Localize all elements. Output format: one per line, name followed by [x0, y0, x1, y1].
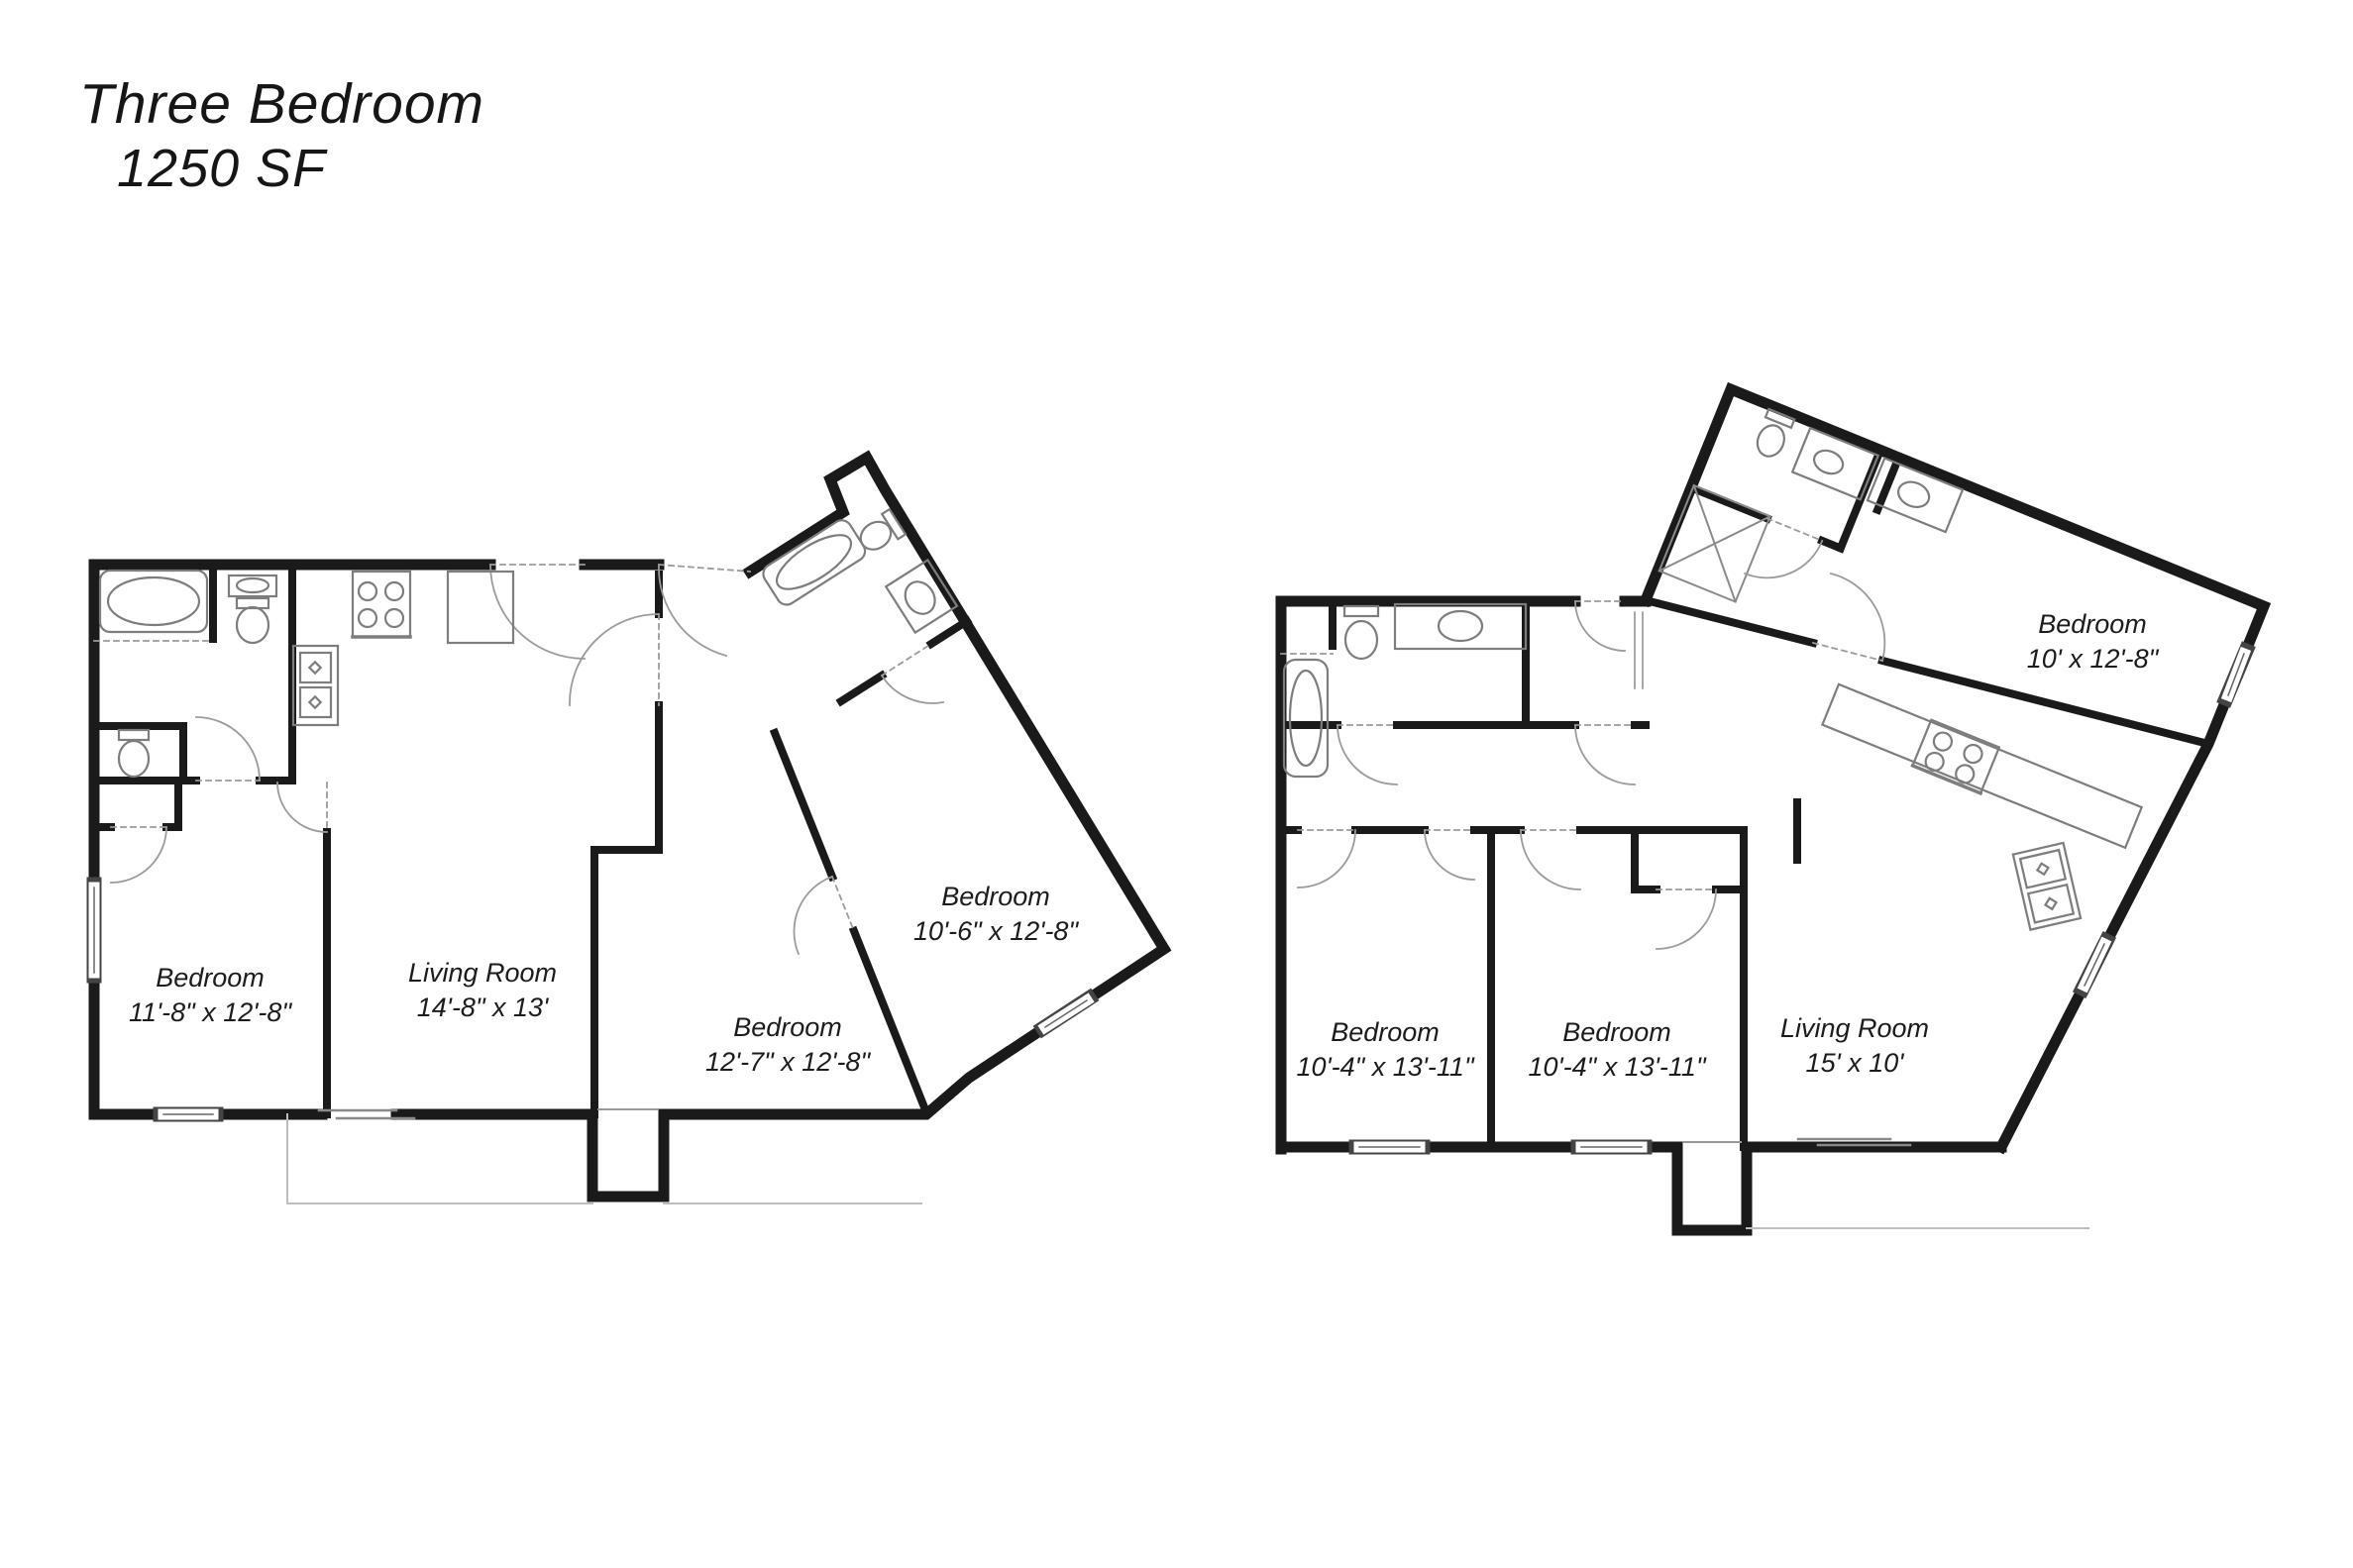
window-icon [2226, 651, 2246, 698]
window-icon [2083, 941, 2106, 989]
room-name: Bedroom [156, 963, 265, 993]
stove-icon [1913, 720, 1999, 793]
entry-stoop [1677, 1147, 1747, 1230]
floor-plan-left-unit [94, 458, 1164, 1203]
exterior-walls [94, 458, 1164, 1197]
room-label-bedroom: Bedroom 12'-7" x 12'-8" [705, 1010, 870, 1080]
room-dimensions: 15' x 10' [1780, 1046, 1929, 1081]
door-arcs [1281, 574, 1884, 949]
room-name: Bedroom [733, 1012, 842, 1042]
exterior-walls [1281, 389, 2264, 1230]
room-name: Living Room [408, 958, 557, 988]
entry-stoop [592, 1114, 664, 1197]
room-name: Bedroom [1331, 1017, 1440, 1047]
patio-outline [287, 1109, 921, 1203]
floorplan-sheet: Three Bedroom 1250 SF [0, 0, 2353, 1568]
bathroom-fixtures [1284, 604, 1526, 777]
room-dimensions: 10'-6" x 12'-8" [913, 914, 1078, 949]
sink-icon [229, 575, 276, 596]
window-icon [1043, 998, 1089, 1028]
sink-icon [1395, 604, 1526, 649]
room-dimensions: 14'-8" x 13' [408, 991, 557, 1025]
room-label-bedroom: Bedroom 10'-4" x 13'-11" [1528, 1015, 1705, 1085]
kitchen-fixtures [293, 572, 513, 725]
refrigerator-icon [448, 572, 513, 643]
floor-plans-drawing [0, 0, 2353, 1568]
room-dimensions: 10' x 12'-8" [2027, 642, 2158, 677]
room-dimensions: 11'-8" x 12'-8" [129, 995, 291, 1030]
stove-icon [353, 572, 410, 637]
cabinet-icon [2013, 843, 2081, 930]
door-arcs [94, 565, 943, 954]
room-dimensions: 12'-7" x 12'-8" [705, 1045, 870, 1080]
room-name: Living Room [1780, 1013, 1929, 1043]
toilet-icon [237, 598, 268, 643]
room-label-bedroom: Bedroom 10'-6" x 12'-8" [913, 880, 1078, 949]
room-label-living-room: Living Room 14'-8" x 13' [408, 956, 557, 1025]
cabinet-icon [293, 646, 338, 725]
room-dimensions: 10'-4" x 13'-11" [1296, 1050, 1473, 1085]
wing-bathroom-fixtures [760, 491, 957, 685]
toilet-icon [119, 730, 149, 777]
room-name: Bedroom [1562, 1017, 1671, 1047]
room-label-living-room: Living Room 15' x 10' [1780, 1011, 1929, 1081]
closet-x-icon [1659, 485, 1770, 601]
toilet-icon [1344, 606, 1378, 659]
room-dimensions: 10'-4" x 13'-11" [1528, 1050, 1705, 1085]
room-label-bedroom: Bedroom 11'-8" x 12'-8" [129, 961, 291, 1030]
room-label-bedroom: Bedroom 10' x 12'-8" [2027, 607, 2158, 677]
door-arcs [1745, 518, 1822, 595]
room-name: Bedroom [2038, 609, 2147, 639]
room-label-bedroom: Bedroom 10'-4" x 13'-11" [1296, 1015, 1473, 1085]
bathtub-icon [1284, 660, 1328, 777]
floor-plan-right-unit [1281, 389, 2264, 1230]
bathtub-icon [100, 571, 207, 632]
toilet-icon [1752, 409, 1794, 461]
room-name: Bedroom [941, 882, 1050, 911]
kitchen-counter [1821, 682, 2143, 851]
